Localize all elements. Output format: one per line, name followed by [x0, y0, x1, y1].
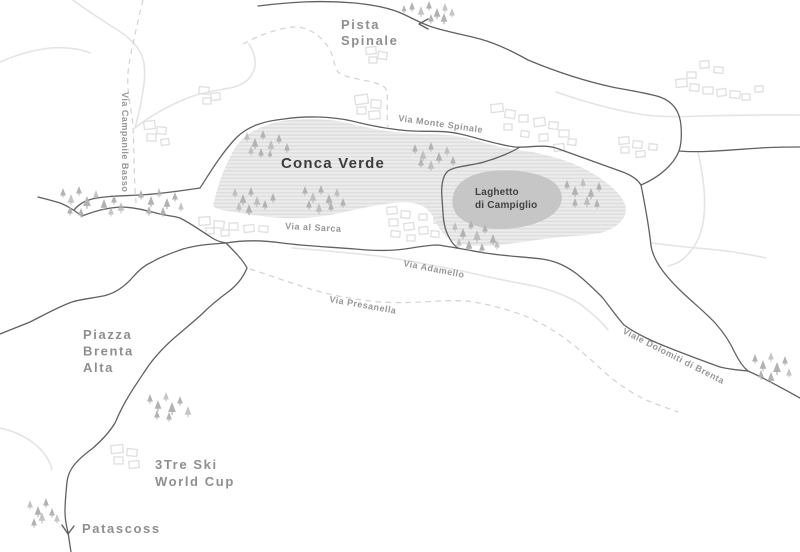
building-footprint	[504, 124, 512, 130]
buildings-layer	[111, 46, 764, 468]
pine-tree-icon	[177, 396, 183, 406]
pine-tree-icon	[428, 14, 434, 24]
building-footprint	[690, 84, 700, 92]
pine-tree-icon	[172, 192, 178, 202]
light-road	[135, 44, 255, 128]
light-road	[0, 48, 90, 62]
pine-tree-icon	[155, 400, 162, 411]
pine-tree-icon	[163, 392, 169, 402]
building-footprint	[676, 79, 688, 88]
building-footprint	[533, 117, 545, 126]
map-label-patascoss: Patascoss	[82, 521, 161, 536]
pine-tree-icon	[768, 352, 774, 362]
pine-tree-icon	[760, 360, 767, 371]
building-footprint	[211, 93, 221, 101]
building-footprint	[378, 51, 388, 59]
light-road	[652, 243, 766, 258]
map-label-viale-dolomiti-di-brenta: Viale Dolomiti di Brenta	[621, 326, 727, 386]
pine-tree-icon	[166, 412, 172, 422]
pine-tree-icon	[164, 198, 171, 209]
building-footprint	[401, 211, 411, 219]
pine-tree-icon	[782, 356, 788, 366]
building-footprint	[636, 151, 646, 158]
light-road	[73, 0, 145, 128]
map-label-conca-verde: Conca Verde	[281, 155, 385, 172]
building-footprint	[431, 231, 440, 238]
labels-layer: PistaSpinaleConca VerdeLaghettodi Campig…	[82, 17, 727, 536]
building-footprint	[619, 136, 630, 144]
pine-tree-icon	[68, 194, 75, 205]
building-footprint	[755, 86, 763, 93]
building-footprint	[206, 228, 214, 234]
pine-tree-icon	[31, 518, 37, 528]
pine-tree-icon	[449, 8, 455, 18]
pine-tree-icon	[752, 354, 758, 364]
building-footprint	[621, 147, 629, 153]
building-footprint	[157, 127, 167, 135]
building-footprint	[714, 67, 724, 74]
pine-tree-icon	[60, 188, 66, 198]
building-footprint	[730, 90, 741, 98]
map-label-via-presanella: Via Presanella	[329, 294, 398, 316]
building-footprint	[129, 460, 140, 468]
building-footprint	[389, 219, 398, 226]
light-road	[292, 248, 608, 330]
map-label-via-al-sarca: Via al Sarca	[285, 221, 342, 234]
building-footprint	[717, 88, 727, 96]
building-footprint	[549, 122, 559, 130]
map-label-via-adamello: Via Adamello	[403, 258, 466, 280]
building-footprint	[633, 141, 643, 149]
building-footprint	[147, 134, 156, 141]
pine-tree-icon	[178, 202, 184, 212]
building-footprint	[214, 220, 225, 228]
building-footprint	[371, 99, 382, 108]
building-footprint	[539, 134, 549, 142]
building-footprint	[419, 214, 427, 220]
pine-tree-icon	[402, 5, 407, 13]
road	[679, 147, 800, 152]
dashed-trail	[250, 269, 678, 412]
building-footprint	[161, 138, 170, 145]
building-footprint	[259, 226, 269, 233]
building-footprint	[229, 223, 238, 230]
building-footprint	[407, 235, 415, 241]
building-footprint	[354, 94, 368, 105]
pine-tree-icon	[441, 13, 448, 24]
building-footprint	[700, 61, 710, 69]
building-footprint	[519, 115, 528, 122]
map-label-via-campanile-basso: Via Campanile Basso	[120, 92, 130, 192]
building-footprint	[404, 222, 415, 230]
building-footprint	[391, 231, 401, 238]
roads-layer	[0, 2, 800, 552]
building-footprint	[369, 111, 381, 120]
pine-tree-icon	[43, 498, 49, 508]
building-footprint	[559, 130, 569, 137]
building-footprint	[369, 57, 377, 63]
pine-tree-icon	[148, 196, 155, 207]
map-viewport: PistaSpinaleConca VerdeLaghettodi Campig…	[0, 0, 800, 552]
pine-tree-icon	[434, 8, 441, 19]
building-footprint	[687, 72, 696, 78]
pine-tree-icon	[147, 394, 153, 404]
building-footprint	[199, 217, 211, 226]
building-footprint	[244, 224, 255, 232]
map-label-pista-spinale: PistaSpinale	[341, 17, 398, 48]
pine-tree-icon	[418, 6, 425, 17]
pine-tree-icon	[49, 508, 55, 518]
pine-tree-icon	[154, 410, 160, 420]
building-footprint	[504, 109, 515, 119]
map-label-piazza-brenta-alta: PiazzaBrentaAlta	[83, 327, 134, 375]
building-footprint	[649, 144, 658, 151]
building-footprint	[357, 107, 366, 114]
building-footprint	[387, 206, 398, 214]
pine-tree-icon	[185, 406, 192, 417]
building-footprint	[568, 139, 577, 146]
building-footprint	[419, 227, 429, 235]
map-label-tre-ski-world-cup: 3Tre SkiWorld Cup	[155, 457, 235, 489]
pine-tree-icon	[27, 500, 33, 510]
building-footprint	[127, 448, 138, 456]
map-canvas[interactable]: PistaSpinaleConca VerdeLaghettodi Campig…	[0, 0, 800, 552]
pine-tree-icon	[409, 2, 415, 12]
pine-tree-icon	[426, 1, 432, 11]
pine-tree-icon	[76, 186, 82, 196]
building-footprint	[144, 120, 156, 129]
building-footprint	[491, 103, 504, 112]
building-footprint	[742, 94, 750, 100]
pine-tree-icon	[786, 368, 792, 378]
pine-tree-icon	[773, 362, 781, 375]
building-footprint	[114, 457, 123, 464]
building-footprint	[221, 230, 230, 237]
light-road	[0, 428, 52, 470]
building-footprint	[521, 130, 530, 137]
pine-tree-icon	[54, 514, 60, 524]
road	[65, 243, 247, 552]
road	[38, 197, 226, 243]
pine-tree-icon	[442, 3, 448, 13]
pine-tree-icon	[35, 506, 42, 517]
building-footprint	[203, 98, 211, 104]
building-footprint	[703, 87, 713, 94]
road	[0, 243, 226, 334]
building-footprint	[111, 444, 124, 453]
